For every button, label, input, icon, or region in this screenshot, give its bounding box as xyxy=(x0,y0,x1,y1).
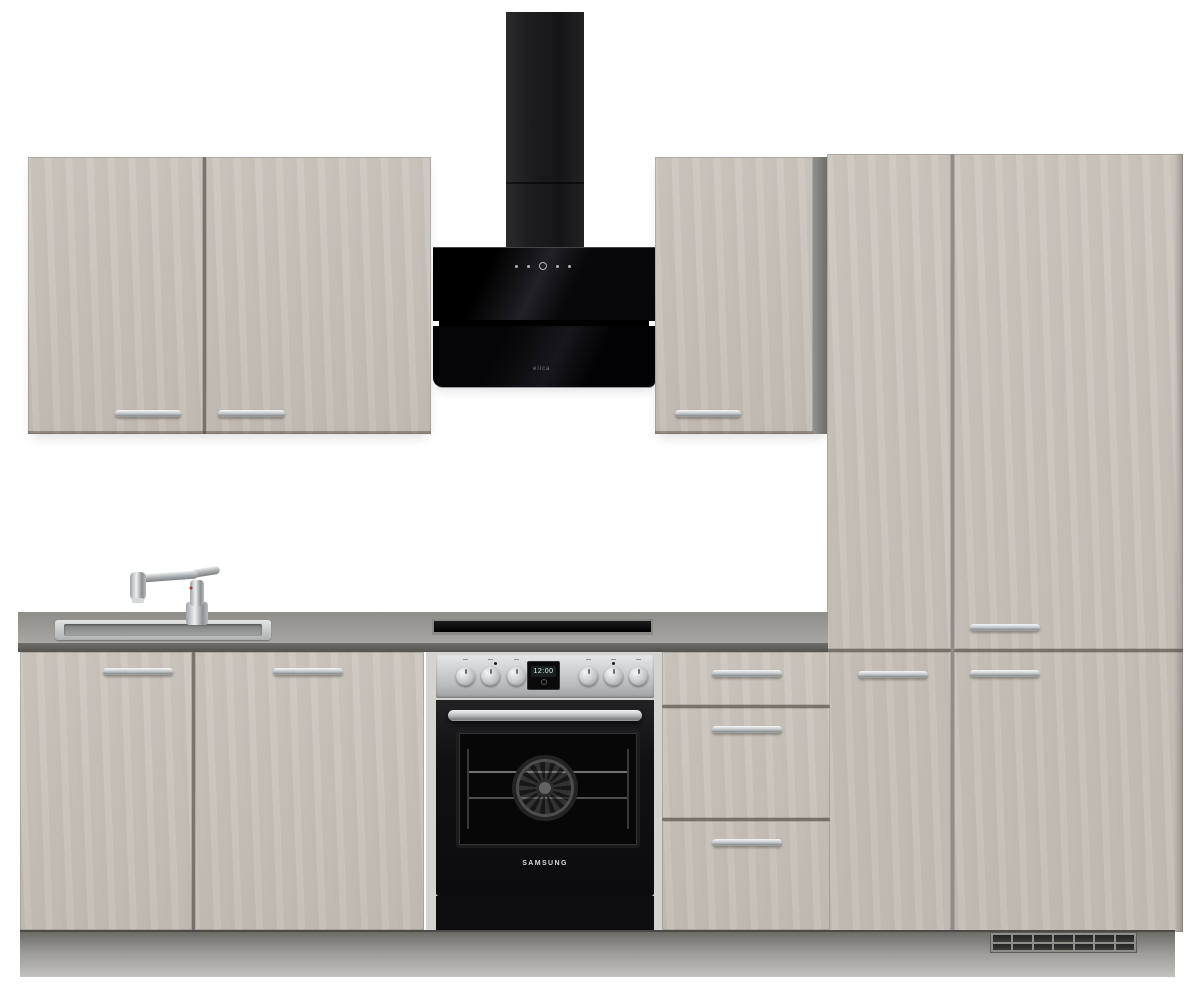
faucet-body xyxy=(190,580,204,606)
wall-left-door-2 xyxy=(206,157,431,434)
tall-cabinet-right xyxy=(954,154,1183,932)
drawer-2-handle xyxy=(712,726,782,733)
oven-side-rail xyxy=(467,749,469,829)
hood-lower-body xyxy=(433,326,655,388)
extractor-hood: elica xyxy=(433,247,655,387)
wall-cabinet-right xyxy=(655,157,827,434)
vent-slot xyxy=(993,944,1011,951)
vent-slot xyxy=(1013,944,1031,951)
vent-slot xyxy=(1054,935,1072,942)
faucet-spout-head xyxy=(130,572,146,600)
base-left-door-2-handle xyxy=(273,668,343,675)
hood-chimney-joint xyxy=(506,182,584,184)
indicator-dot xyxy=(612,662,615,665)
tall-right-upper-door-handle xyxy=(970,624,1040,631)
oven-side-rail xyxy=(627,749,629,829)
vent-slot xyxy=(993,935,1011,942)
oven-knob-1 xyxy=(456,667,475,686)
base-left-door-1 xyxy=(20,652,192,930)
timer-icon xyxy=(568,265,571,268)
tall-left-lower-door xyxy=(827,652,951,932)
oven-window xyxy=(456,730,640,848)
oven-knob-2 xyxy=(481,667,500,686)
hood-chimney xyxy=(506,12,584,248)
wall-left-door-1 xyxy=(28,157,203,434)
drawer-3 xyxy=(662,821,830,930)
wall-left-door-2-handle xyxy=(218,410,285,417)
wall-cabinet-left xyxy=(28,157,431,434)
vent-slot xyxy=(1116,944,1134,951)
vent-slot xyxy=(1034,944,1052,951)
cabinet-bottom-shade xyxy=(655,431,813,434)
knob-function-mark xyxy=(636,659,641,660)
oven-brand-logo: SAMSUNG xyxy=(436,860,654,867)
oven-door-handle xyxy=(448,710,642,721)
tall-left-lower-door-handle xyxy=(858,671,928,678)
wall-right-door xyxy=(655,157,813,434)
cabinet-bottom-shade xyxy=(28,431,431,434)
vent-slot xyxy=(1095,935,1113,942)
display-emblem xyxy=(541,679,547,685)
drawer-3-handle xyxy=(712,839,782,846)
tall-right-lower-door-handle xyxy=(970,670,1040,677)
vent-slot xyxy=(1095,944,1113,951)
indicator-dot xyxy=(494,662,497,665)
wall-right-side-panel xyxy=(813,157,827,434)
vent-slot xyxy=(1075,944,1093,951)
oven-control-panel: 12:00 xyxy=(436,655,654,698)
oven-fan xyxy=(519,762,571,814)
oven-knob-4 xyxy=(579,667,598,686)
vent-slot xyxy=(1013,935,1031,942)
drawer-2 xyxy=(662,708,830,818)
faucet xyxy=(120,558,230,626)
oven-bottom-trim xyxy=(436,896,654,930)
drawer-1-handle xyxy=(712,670,782,677)
oven-door: SAMSUNG xyxy=(436,700,654,896)
fan-speed-icon xyxy=(527,265,530,268)
tall-cabinet-left xyxy=(827,154,951,932)
tall-right-upper-door xyxy=(954,154,1183,649)
oven-knob-5 xyxy=(604,667,623,686)
knob-function-mark xyxy=(463,659,468,660)
power-icon xyxy=(539,262,547,270)
wall-right-door-handle xyxy=(675,410,741,417)
oven-fan-hub xyxy=(539,782,551,794)
tall-left-upper-door xyxy=(827,154,951,649)
vent-slot xyxy=(1116,935,1134,942)
oven-display: 12:00 xyxy=(527,661,560,690)
drawer-unit xyxy=(662,652,830,930)
drawer-1 xyxy=(662,652,830,705)
minus-icon xyxy=(515,265,518,268)
oven-clock: 12:00 xyxy=(531,666,556,677)
hood-brand-mark: elica xyxy=(533,366,550,372)
oven-housing: 12:00 SAMSUNG xyxy=(426,652,662,930)
knob-function-mark xyxy=(488,659,493,660)
base-left-door-2 xyxy=(195,652,424,930)
tall-right-lower-door xyxy=(954,652,1183,932)
faucet-temp-dot xyxy=(190,587,193,590)
hood-glass-panel xyxy=(433,247,655,321)
knob-function-mark xyxy=(611,659,616,660)
oven-knob-3 xyxy=(507,667,526,686)
base-left-door-1-handle xyxy=(103,668,173,675)
cooktop-glass xyxy=(434,621,651,632)
vent-slot xyxy=(1034,935,1052,942)
kitchen-product-image: elica xyxy=(0,0,1200,1001)
cooktop xyxy=(432,619,653,635)
light-icon xyxy=(556,265,559,268)
base-cabinet-left xyxy=(20,652,424,930)
oven-knob-6 xyxy=(629,667,648,686)
vent-grille xyxy=(990,932,1137,953)
faucet-aerator xyxy=(132,598,144,603)
vent-slot xyxy=(1054,944,1072,951)
knob-function-mark xyxy=(514,659,519,660)
wall-left-door-1-handle xyxy=(115,410,181,417)
tall-right-edge-shade xyxy=(1174,154,1183,932)
knob-function-mark xyxy=(586,659,591,660)
vent-slot xyxy=(1075,935,1093,942)
hood-touch-controls xyxy=(515,262,571,270)
countertop-front-edge xyxy=(18,643,828,652)
